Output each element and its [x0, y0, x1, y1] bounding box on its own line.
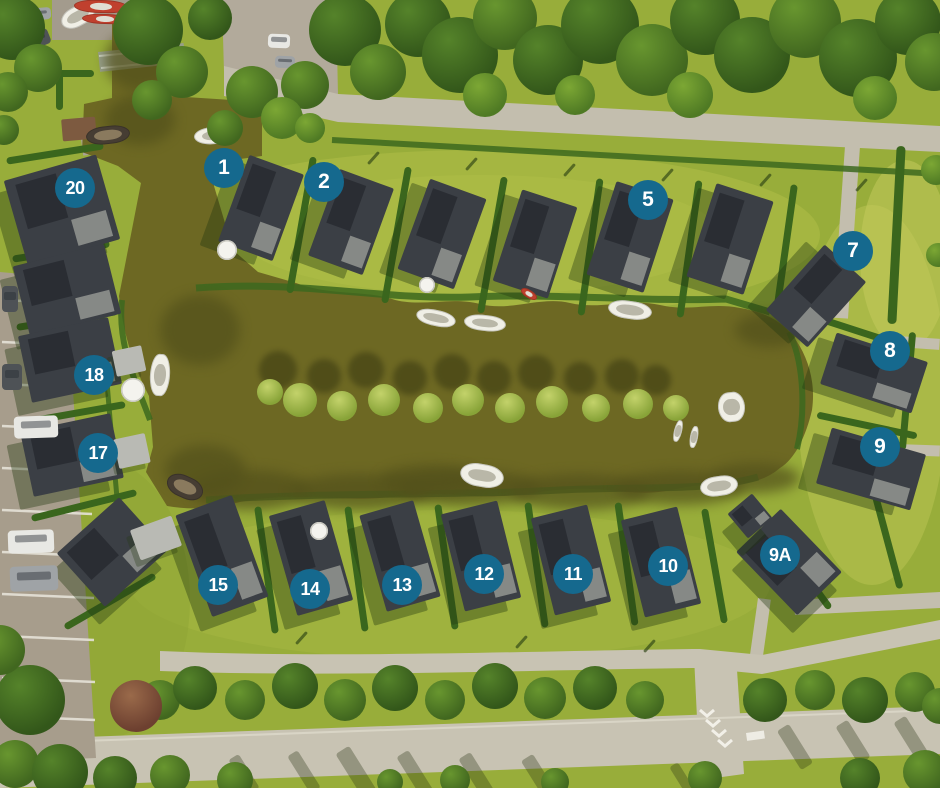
lot-marker-9A[interactable]: 9A — [760, 535, 800, 575]
lot-marker-7[interactable]: 7 — [833, 231, 873, 271]
marker-label: 12 — [474, 564, 493, 585]
marker-label: 13 — [392, 575, 411, 596]
marker-label: 14 — [300, 579, 319, 600]
lot-marker-18[interactable]: 18 — [74, 355, 114, 395]
lot-marker-14[interactable]: 14 — [290, 569, 330, 609]
lot-marker-9[interactable]: 9 — [860, 427, 900, 467]
marker-label: 10 — [658, 556, 677, 577]
marker-label: 1 — [218, 156, 230, 180]
marker-label: 11 — [564, 564, 582, 585]
marker-label: 15 — [208, 575, 227, 596]
marker-label: 20 — [65, 178, 84, 199]
marker-label: 7 — [847, 239, 859, 263]
holiday-park-aerial-map: 1 2 5 7 8 9 9A 10 11 12 13 14 15 17 18 — [0, 0, 940, 788]
lot-marker-13[interactable]: 13 — [382, 565, 422, 605]
lot-marker-15[interactable]: 15 — [198, 565, 238, 605]
lot-marker-8[interactable]: 8 — [870, 331, 910, 371]
lot-marker-2[interactable]: 2 — [304, 162, 344, 202]
lot-marker-20[interactable]: 20 — [55, 168, 95, 208]
marker-label: 9A — [769, 545, 791, 566]
lot-marker-5[interactable]: 5 — [628, 180, 668, 220]
lot-marker-10[interactable]: 10 — [648, 546, 688, 586]
lot-marker-12[interactable]: 12 — [464, 554, 504, 594]
marker-label: 5 — [642, 188, 654, 212]
lot-marker-11[interactable]: 11 — [553, 554, 593, 594]
lot-marker-1[interactable]: 1 — [204, 148, 244, 188]
marker-label: 18 — [84, 365, 103, 386]
marker-label: 8 — [884, 339, 896, 363]
marker-label: 2 — [318, 170, 330, 194]
lot-markers-layer: 1 2 5 7 8 9 9A 10 11 12 13 14 15 17 18 — [0, 0, 940, 788]
marker-label: 17 — [88, 443, 107, 464]
marker-label: 9 — [874, 435, 886, 459]
lot-marker-17[interactable]: 17 — [78, 433, 118, 473]
